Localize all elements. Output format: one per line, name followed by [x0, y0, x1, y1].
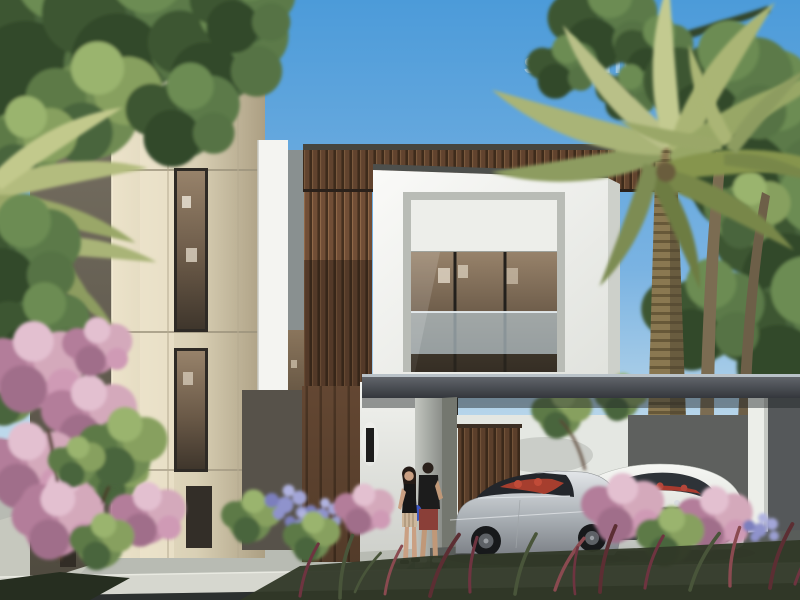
villa-render: salesnlease.com: [0, 0, 800, 600]
tower-window-upper: [174, 168, 208, 332]
wall-sconce: [366, 428, 374, 462]
tower-window-lower: [174, 348, 208, 472]
render-viewport: salesnlease.com: [0, 0, 800, 600]
tower-ground-window: [186, 486, 212, 548]
picture-window: [403, 192, 565, 372]
white-box-volume: [373, 164, 620, 382]
